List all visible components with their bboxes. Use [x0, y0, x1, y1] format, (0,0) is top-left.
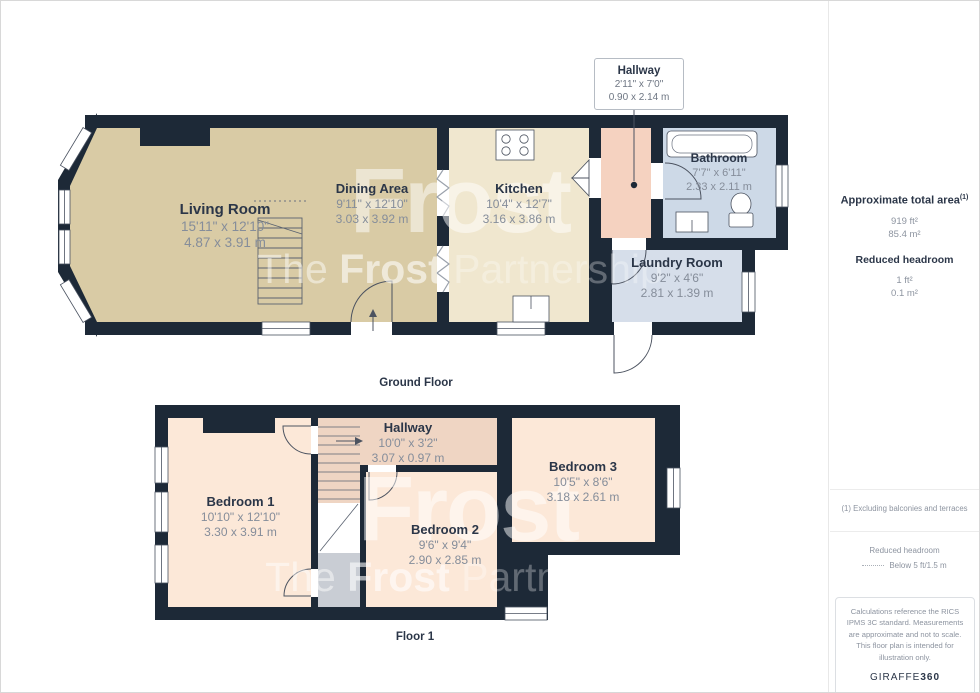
- room-label-bedroom-1: Bedroom 1 10'10" x 12'10" 3.30 x 3.91 m: [168, 493, 313, 540]
- room-label-bathroom: Bathroom 7'7" x 6'11" 2.33 x 2.11 m: [649, 151, 789, 194]
- room-hallway-ground-floor: [601, 128, 651, 238]
- toilet-icon: [729, 193, 753, 227]
- callout-room-name: Hallway: [597, 64, 681, 78]
- reduced-headroom-metric: 0.1 m²: [829, 287, 980, 301]
- section-divider: [830, 531, 980, 532]
- reduced-headroom-title: Reduced headroom: [829, 254, 980, 266]
- room-label-dining-area: Dining Area 9'11" x 12'10" 3.03 x 3.92 m: [302, 180, 442, 227]
- room-label-bedroom-3: Bedroom 3 10'5" x 8'6" 3.18 x 2.61 m: [513, 458, 653, 505]
- hallway-callout: Hallway 2'11" x 7'0" 0.90 x 2.14 m: [594, 58, 684, 110]
- disclaimer-box: Calculations reference the RICS IPMS 3C …: [835, 597, 975, 693]
- area-summary: Approximate total area(1) 919 ft² 85.4 m…: [829, 194, 980, 301]
- ground-floor-caption: Ground Floor: [346, 377, 486, 389]
- section-divider: [830, 489, 980, 490]
- floor-1-caption: Floor 1: [345, 631, 485, 643]
- legend-title: Reduced headroom: [829, 546, 980, 555]
- stove-icon: [496, 130, 534, 160]
- total-area-metric: 85.4 m²: [829, 228, 980, 242]
- kitchen-sink-icon: [513, 296, 549, 322]
- dotted-line-sample-icon: [862, 565, 884, 566]
- room-label-living-room: Living Room 15'11" x 12'10" 4.87 x 3.91 …: [125, 200, 325, 251]
- balconies-footnote: (1) Excluding balconies and terraces: [829, 504, 980, 513]
- info-sidebar: Approximate total area(1) 919 ft² 85.4 m…: [829, 0, 980, 693]
- legend-value: Below 5 ft/1.5 m: [889, 561, 946, 570]
- room-label-bedroom-2: Bedroom 2 9'6" x 9'4" 2.90 x 2.85 m: [375, 521, 515, 568]
- stair-landing: [318, 553, 360, 607]
- legend-row: Below 5 ft/1.5 m: [829, 561, 980, 570]
- reduced-headroom-imperial: 1 ft²: [829, 274, 980, 288]
- footnote-marker: (1): [960, 194, 969, 201]
- callout-dim-metric: 0.90 x 2.14 m: [597, 91, 681, 104]
- total-area-imperial: 919 ft²: [829, 215, 980, 229]
- chimney-breast: [140, 128, 210, 146]
- bathroom-sink-icon: [676, 212, 708, 232]
- giraffe360-logo: GIRAFFE360: [842, 670, 968, 685]
- callout-anchor-dot: [631, 182, 637, 188]
- room-label-laundry-room: Laundry Room 9'2" x 4'6" 2.81 x 1.39 m: [607, 254, 747, 301]
- total-area-title: Approximate total area(1): [829, 194, 980, 207]
- room-label-kitchen: Kitchen 10'4" x 12'7" 3.16 x 3.86 m: [449, 180, 589, 227]
- room-label-hallway-floor1: Hallway 10'0" x 3'2" 3.07 x 0.97 m: [338, 419, 478, 466]
- floorplan-page: Frost The Frost Partnership Frost The Fr…: [0, 0, 980, 693]
- callout-dim-imperial: 2'11" x 7'0": [597, 78, 681, 91]
- disclaimer-text: Calculations reference the RICS IPMS 3C …: [842, 606, 968, 663]
